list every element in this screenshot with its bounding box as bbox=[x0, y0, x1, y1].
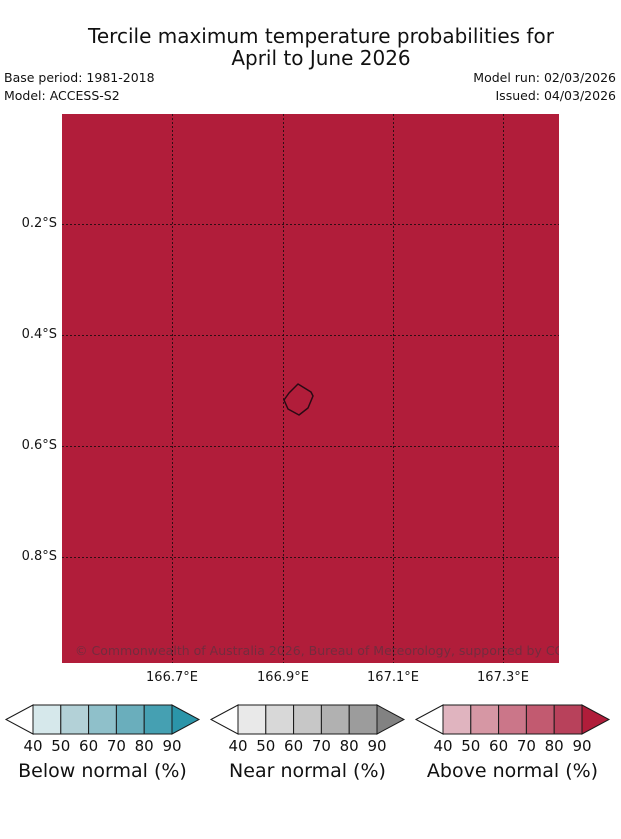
colorbar-tick-label: 50 bbox=[456, 737, 486, 755]
colorbar-tick-label: 70 bbox=[306, 737, 336, 755]
colorbar-segment bbox=[116, 705, 144, 734]
colorbar-label-near-normal: Near normal (%) bbox=[210, 760, 405, 783]
model-run-text: Model run: 02/03/2026 bbox=[473, 69, 616, 87]
colorbar-segment bbox=[349, 705, 377, 734]
colorbar-tick-label: 90 bbox=[362, 737, 392, 755]
colorbar-segment bbox=[33, 705, 61, 734]
colorbar-tick-label: 80 bbox=[129, 737, 159, 755]
nauru-outline-icon bbox=[280, 380, 320, 420]
page-title: Tercile maximum temperature probabilitie… bbox=[21, 25, 621, 69]
colorbar-tick-label: 70 bbox=[101, 737, 131, 755]
gridline-vertical bbox=[172, 114, 173, 663]
colorbar-segment bbox=[443, 705, 471, 734]
gridline-vertical bbox=[283, 114, 284, 663]
gridline-horizontal bbox=[62, 224, 559, 225]
colorbar-segment bbox=[526, 705, 554, 734]
colorbar-right-arrow-icon bbox=[172, 705, 199, 734]
meta-left: Base period: 1981-2018 Model: ACCESS-S2 bbox=[4, 69, 155, 105]
x-tick-label: 166.9°E bbox=[243, 670, 323, 686]
issued-text: Issued: 04/03/2026 bbox=[473, 87, 616, 105]
x-tick-label: 167.3°E bbox=[463, 670, 543, 686]
colorbar-below-normal bbox=[5, 704, 200, 735]
colorbar-tick-label: 40 bbox=[428, 737, 458, 755]
colorbar-tick-label: 60 bbox=[74, 737, 104, 755]
title-line-1: Tercile maximum temperature probabilitie… bbox=[21, 25, 621, 47]
colorbar-segment bbox=[61, 705, 89, 734]
colorbar-near-normal bbox=[210, 704, 405, 735]
gridline-vertical bbox=[503, 114, 504, 663]
copyright-text: © Commonwealth of Australia 2026, Bureau… bbox=[75, 643, 559, 658]
colorbar-segment bbox=[294, 705, 322, 734]
colorbar-segment bbox=[238, 705, 266, 734]
colorbar-segment bbox=[321, 705, 349, 734]
colorbar-tick-label: 70 bbox=[511, 737, 541, 755]
colorbar-left-arrow-icon bbox=[211, 705, 238, 734]
colorbar-left-arrow-icon bbox=[416, 705, 443, 734]
gridline-horizontal bbox=[62, 335, 559, 336]
colorbar-tick-label: 60 bbox=[484, 737, 514, 755]
gridline-horizontal bbox=[62, 557, 559, 558]
colorbar-tick-label: 50 bbox=[251, 737, 281, 755]
colorbar-segment bbox=[554, 705, 582, 734]
map-panel: © Commonwealth of Australia 2026, Bureau… bbox=[62, 114, 559, 663]
colorbar-segment bbox=[471, 705, 499, 734]
colorbar-tick-label: 60 bbox=[279, 737, 309, 755]
y-tick-label: 0.2°S bbox=[0, 216, 57, 232]
colorbar-tick-label: 80 bbox=[539, 737, 569, 755]
model-text: Model: ACCESS-S2 bbox=[4, 87, 155, 105]
colorbar-tick-label: 90 bbox=[157, 737, 187, 755]
x-tick-label: 166.7°E bbox=[132, 670, 212, 686]
colorbar-segment bbox=[266, 705, 294, 734]
gridline-vertical bbox=[393, 114, 394, 663]
gridline-horizontal bbox=[62, 446, 559, 447]
y-tick-label: 0.6°S bbox=[0, 438, 57, 454]
colorbar-left-arrow-icon bbox=[6, 705, 33, 734]
y-tick-label: 0.8°S bbox=[0, 549, 57, 565]
colorbar-tick-label: 40 bbox=[223, 737, 253, 755]
colorbar-segment bbox=[89, 705, 117, 734]
x-tick-label: 167.1°E bbox=[353, 670, 433, 686]
colorbar-segment bbox=[144, 705, 172, 734]
colorbar-tick-label: 80 bbox=[334, 737, 364, 755]
colorbar-label-below-normal: Below normal (%) bbox=[5, 760, 200, 783]
colorbar-right-arrow-icon bbox=[582, 705, 609, 734]
base-period-text: Base period: 1981-2018 bbox=[4, 69, 155, 87]
colorbar-tick-label: 40 bbox=[18, 737, 48, 755]
colorbar-right-arrow-icon bbox=[377, 705, 404, 734]
meta-right: Model run: 02/03/2026 Issued: 04/03/2026 bbox=[473, 69, 616, 105]
colorbar-label-above-normal: Above normal (%) bbox=[415, 760, 610, 783]
colorbar-tick-label: 50 bbox=[46, 737, 76, 755]
colorbar-tick-label: 90 bbox=[567, 737, 597, 755]
title-line-2: April to June 2026 bbox=[21, 47, 621, 69]
y-tick-label: 0.4°S bbox=[0, 327, 57, 343]
colorbar-segment bbox=[499, 705, 527, 734]
figure: Tercile maximum temperature probabilitie… bbox=[0, 0, 621, 839]
colorbar-above-normal bbox=[415, 704, 610, 735]
